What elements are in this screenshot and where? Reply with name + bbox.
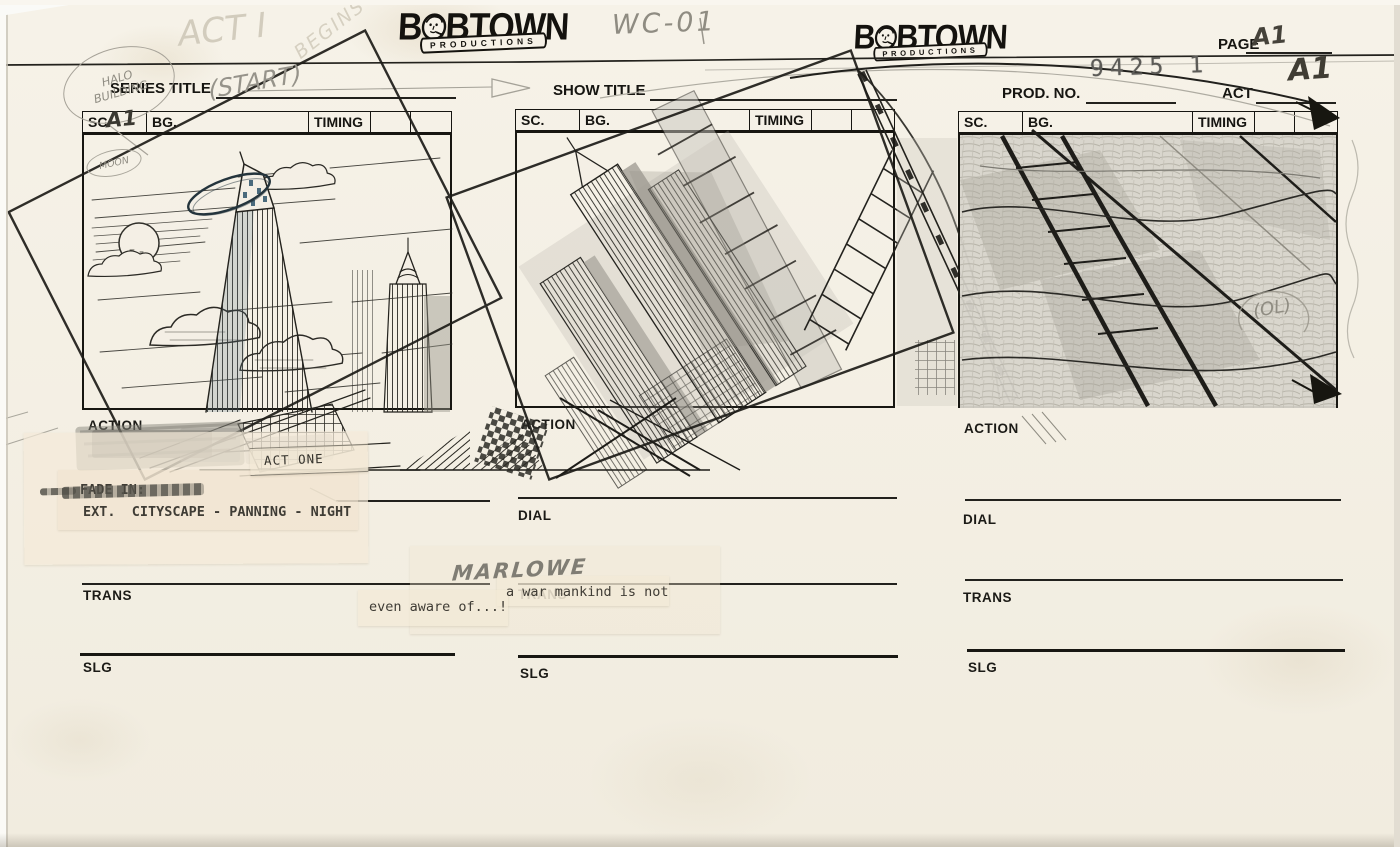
bg-cell: BG. xyxy=(580,110,750,130)
tape-strip xyxy=(58,470,358,530)
timing-cell: TIMING xyxy=(309,112,371,132)
trans-line xyxy=(965,579,1343,581)
panel-2-dial-label: DIAL xyxy=(518,508,552,523)
slg-line xyxy=(80,653,455,656)
slg-line xyxy=(518,655,898,658)
panel-3-header: SC. BG. TIMING xyxy=(958,111,1338,133)
bobtown-logo: B BTOWN PRODUCTIONS xyxy=(854,24,1007,59)
act-label: ACT xyxy=(1222,85,1253,102)
scene-heading-text: EXT. CITYSCAPE - PANNING - NIGHT xyxy=(83,504,351,520)
series-title-line xyxy=(216,97,456,99)
panel-3-slg-label: SLG xyxy=(968,660,997,675)
timing-cell: TIMING xyxy=(1193,112,1255,132)
panel-1-sc-value: A1 xyxy=(105,106,138,133)
dialogue-line-1: a war mankind is not xyxy=(506,584,669,600)
scan-shadow xyxy=(0,833,1400,847)
logo-letter: B xyxy=(397,10,422,44)
blank-cell xyxy=(411,112,451,132)
scan-edge xyxy=(1394,0,1400,847)
prod-no-label: PROD. NO. xyxy=(1002,85,1080,102)
timing-cell: TIMING xyxy=(750,110,812,130)
page-number-value: A1 xyxy=(1251,20,1289,52)
panel-3-dial-label: DIAL xyxy=(963,512,997,527)
dial-line xyxy=(965,499,1341,501)
blank-cell xyxy=(1255,112,1295,132)
blank-cell xyxy=(852,110,894,130)
storyboard-sheet: B BTOWN PRODUCTIONS B BTOW xyxy=(0,0,1400,847)
moon-note: MOON xyxy=(98,154,130,171)
slg-line xyxy=(967,649,1345,652)
sc-cell: SC. xyxy=(959,112,1023,132)
production-code-note: WC-01 xyxy=(611,6,717,41)
blank-cell xyxy=(812,110,852,130)
panel-3-action-label: ACTION xyxy=(964,421,1019,436)
show-title-line xyxy=(650,99,897,101)
dialogue-line-2: even aware of...! xyxy=(369,599,507,615)
bg-cell: BG. xyxy=(1023,112,1193,132)
strike-through xyxy=(40,487,76,495)
dial-line xyxy=(518,497,897,499)
panel-2-header: SC. BG. TIMING xyxy=(515,109,895,131)
act-title-text: ACT ONE xyxy=(264,451,324,468)
logo-letter: B xyxy=(853,22,876,52)
panel-2-action-label: ACTION xyxy=(521,417,576,432)
prod-no-stamp: 9425 1 xyxy=(1090,52,1210,82)
panel-3-frame xyxy=(958,133,1338,408)
blank-cell xyxy=(371,112,411,132)
paper-edge xyxy=(6,0,8,847)
panel-3-trans-label: TRANS xyxy=(963,590,1012,605)
panel-1-action-label: ACTION xyxy=(88,418,143,433)
panel-2-frame xyxy=(515,131,895,408)
panel-1-trans-label: TRANS xyxy=(83,588,132,603)
prod-no-line xyxy=(1086,102,1176,104)
panel-2-slg-label: SLG xyxy=(520,666,549,681)
panel-1-slg-label: SLG xyxy=(83,660,112,675)
act-value: A1 xyxy=(1287,51,1333,89)
scan-edge xyxy=(0,0,1400,5)
act-line xyxy=(1256,102,1336,104)
sc-cell: SC. xyxy=(516,110,580,130)
show-title-label: SHOW TITLE xyxy=(553,82,646,99)
panel-1-frame xyxy=(82,133,452,410)
bobtown-logo: B BTOWN PRODUCTIONS xyxy=(398,12,568,51)
blank-cell xyxy=(1295,112,1337,132)
bg-cell: BG. xyxy=(147,112,309,132)
